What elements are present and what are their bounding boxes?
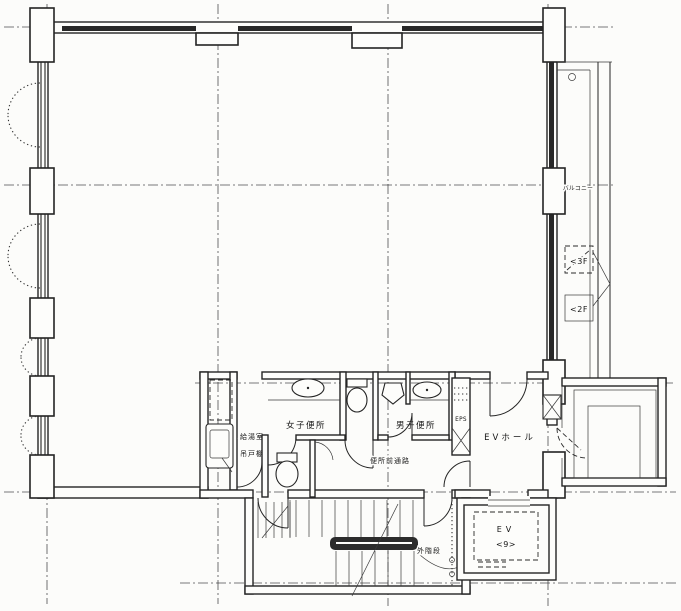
outside-stair-label: 外階段 [417,546,441,555]
stair-door-swing-right [424,498,452,526]
elevator-label: EV [497,525,516,534]
balcony-label: バルコニー [563,185,593,192]
balcony-drain [569,74,576,81]
eps-shaft: EPS [452,378,470,455]
walkway-door-swing [237,462,262,487]
mens-toilet: 男子便所 [378,372,455,440]
stair-treads-lower [336,551,414,586]
ev-hall-label: EVホール [484,433,536,443]
kitchenette-label: 給湯室 [240,432,264,441]
stair-treads-upper [290,500,413,537]
toilet [347,388,367,412]
stair-treads-entry [258,502,290,538]
womens-toilet-label: 女子便所 [286,420,326,431]
toilet-corridor-label: 便所前通路 [370,456,410,465]
wc-stall [345,372,378,468]
stairwell: 外階段 [245,498,470,596]
womens-toilet: 女子便所 [262,372,346,497]
balcony: バルコニー <3F <2F [557,62,612,378]
eps-label: EPS [455,417,467,423]
stall-door-swing [345,440,373,468]
stair-door-swing-left [258,498,288,528]
to-2f-marker: <2F [570,305,588,314]
floor-plan-drawing: バルコニー <3F <2F 給湯室 吊戸棚 [0,0,681,611]
toilet [276,461,298,487]
toilet-corridor: 便所前通路 [370,456,470,487]
hanging-cupboard-outline [210,380,232,420]
urinal [382,383,404,404]
exterior-landing [557,378,666,486]
hanging-cupboard-label: 吊戸棚 [240,449,264,458]
escape-stair-markers: <3F <2F [565,246,610,321]
elevator-capacity: <9> [496,540,516,549]
floor-plan-scan: バルコニー <3F <2F 給湯室 吊戸棚 [0,0,681,611]
elevator-shaft: EV <9> [457,496,556,580]
to-3f-marker: <3F [570,257,588,266]
ev-hall-door-swing [490,379,527,416]
toilet-tank [347,379,367,387]
mens-toilet-label: 男子便所 [396,420,436,431]
corridor-door-swing [444,461,470,487]
